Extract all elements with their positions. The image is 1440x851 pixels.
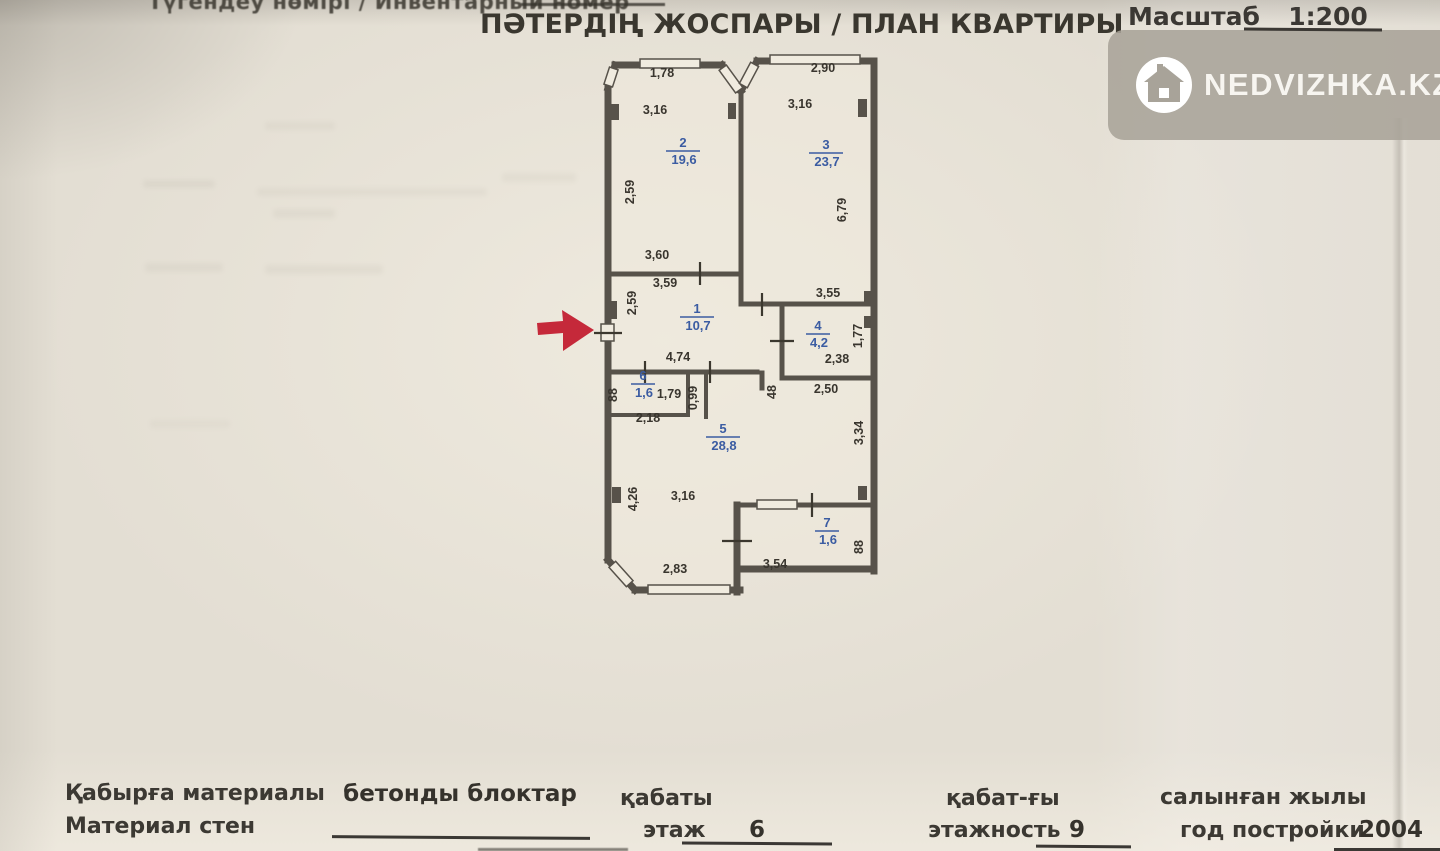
dimension-label: 2,38 — [825, 352, 849, 366]
dimension-label: 0,99 — [686, 386, 700, 410]
year-built-value: 2004 — [1326, 817, 1440, 843]
wall-material-value: бетонды блоктар — [330, 781, 590, 807]
room-number: 2 — [679, 135, 686, 150]
dimension-label: 2,90 — [811, 61, 835, 75]
wall-material-label-kk: Қабырға материалы — [65, 781, 325, 806]
floor-value: 6 — [692, 817, 822, 843]
floor-label-kk: қабаты — [620, 786, 713, 811]
dimension-label: 3,59 — [653, 276, 677, 290]
dimension-label: 6,79 — [835, 198, 849, 222]
room-area: 10,7 — [685, 318, 710, 333]
dimension-label: 48 — [765, 385, 779, 399]
room-area: 28,8 — [711, 438, 736, 453]
dimension-label: 1,79 — [657, 387, 681, 401]
year-built-label-kk: салынған жылы — [1160, 785, 1367, 810]
floor-plan: 1,782,903,163,162,596,793,603,592,593,55… — [0, 0, 1440, 851]
dimension-label: 3,16 — [643, 103, 667, 117]
dimension-label: 2,83 — [663, 562, 687, 576]
dimension-label: 2,59 — [623, 180, 637, 204]
wall-material-label-ru: Материал стен — [65, 814, 255, 839]
dimension-label: 88 — [852, 540, 866, 554]
dimension-label: 2,59 — [625, 291, 639, 315]
total-floors-value: 9 — [1012, 817, 1142, 843]
dimension-label: 3,16 — [788, 97, 812, 111]
dimension-label: 3,55 — [816, 286, 840, 300]
scanned-floor-plan-page: { "document": { "inventory_label": "Түге… — [0, 0, 1440, 851]
room-number: 7 — [823, 515, 830, 530]
room-number: 1 — [693, 301, 700, 316]
dimension-label: 3,34 — [852, 421, 866, 445]
dimension-label: 3,16 — [671, 489, 695, 503]
dimension-label: 1,78 — [650, 66, 674, 80]
room-number: 4 — [814, 318, 822, 333]
room-area: 19,6 — [671, 152, 696, 167]
room-area: 23,7 — [814, 154, 839, 169]
dimension-label: 88 — [606, 388, 620, 402]
dimension-label: 1,77 — [851, 324, 865, 348]
total-floors-label-kk: қабат-ғы — [946, 786, 1060, 811]
room-area: 1,6 — [819, 532, 837, 547]
room-area: 1,6 — [635, 385, 653, 400]
room-area: 4,2 — [810, 335, 828, 350]
dimension-label: 4,26 — [626, 487, 640, 511]
room-number: 5 — [719, 421, 726, 436]
dimension-label: 3,54 — [763, 557, 787, 571]
room-number: 3 — [822, 137, 829, 152]
room-number: 6 — [639, 368, 646, 383]
dimension-label: 4,74 — [666, 350, 690, 364]
dimension-label: 2,18 — [636, 411, 660, 425]
dimension-label: 3,60 — [645, 248, 669, 262]
dimension-label: 2,50 — [814, 382, 838, 396]
entrance-arrow-icon — [537, 310, 594, 351]
